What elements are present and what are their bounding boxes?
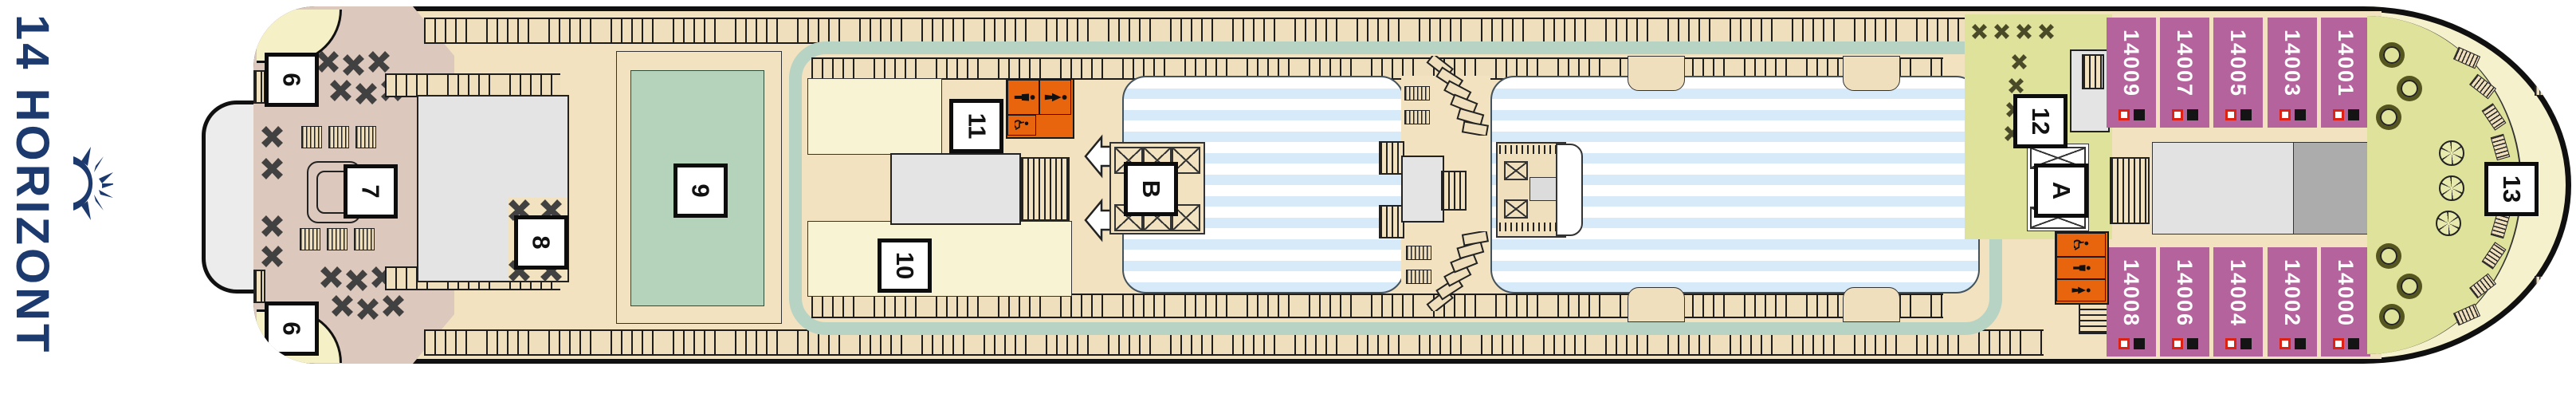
cabin-block: 14007 — [2160, 18, 2209, 128]
black-square-icon — [2295, 338, 2306, 349]
bench-icon — [327, 228, 348, 250]
deck-marker-label: 6 — [277, 73, 306, 86]
corridor-core — [2152, 142, 2295, 234]
black-square-icon — [2187, 109, 2198, 120]
cabin-indicators — [2172, 109, 2198, 120]
stairs-icon — [1441, 171, 1467, 211]
stairs-icon — [1020, 157, 1070, 221]
red-square-icon — [2225, 109, 2236, 120]
deck-marker-6-aft-bottom: 6 — [265, 301, 319, 356]
deck-marker-label: 7 — [356, 184, 385, 198]
dining-table-icon — [2383, 46, 2401, 64]
deck-marker-A: A — [2034, 164, 2088, 218]
deck-marker-6-aft-top: 6 — [265, 53, 319, 107]
bench-icon — [354, 228, 375, 250]
sofa-icon — [2535, 276, 2557, 289]
pool-terrace — [1628, 287, 1685, 322]
deck-marker-label: 8 — [527, 235, 556, 249]
deck-title: 14 HORIZONT — [11, 14, 59, 397]
cabin-block: 14002 — [2268, 247, 2317, 357]
red-square-icon — [2280, 338, 2291, 349]
wc-block — [1006, 78, 1074, 139]
bench-icon — [300, 228, 320, 250]
black-square-icon — [2187, 338, 2198, 349]
sun-lounger-row — [424, 18, 1965, 44]
deck-marker-12: 12 — [2013, 94, 2067, 148]
red-square-icon — [2119, 109, 2130, 120]
deck-marker-label: 10 — [890, 252, 919, 279]
red-square-icon — [2119, 338, 2130, 349]
cabin-indicators — [2172, 338, 2198, 349]
cabin-block: 14004 — [2213, 247, 2263, 357]
cabin-indicators — [2333, 109, 2359, 120]
cabin-indicators — [2333, 338, 2359, 349]
wc-women-icon — [2056, 279, 2106, 301]
deck-marker-13: 13 — [2484, 162, 2539, 216]
black-square-icon — [2134, 338, 2145, 349]
pool-terrace — [1843, 56, 1900, 91]
black-square-icon — [2240, 338, 2252, 349]
plant-icon — [2439, 140, 2464, 166]
sun-logo-icon — [67, 131, 113, 236]
kids-club-area — [807, 78, 942, 155]
cabin-block: 14000 — [2321, 247, 2370, 357]
deck-marker-label: 12 — [2026, 108, 2055, 135]
bench-icon — [301, 126, 322, 148]
dining-table-icon — [2383, 308, 2401, 325]
cabin-block: 14006 — [2160, 247, 2209, 357]
pool-bar-counter — [1556, 144, 1583, 236]
sun-lounger-row — [811, 294, 1943, 318]
fanned-loungers — [1425, 56, 1497, 136]
plant-icon — [2439, 175, 2464, 201]
dining-table-icon — [2380, 247, 2397, 265]
cabin-block: 14003 — [2268, 18, 2317, 128]
fanned-loungers — [1425, 231, 1497, 311]
cabin-indicators — [2119, 338, 2145, 349]
pool-terrace — [1628, 56, 1685, 91]
deck-marker-7: 7 — [344, 164, 398, 219]
ship-hull: 14009 14007 14005 14003 14001 14008 1400… — [253, 6, 2571, 364]
cabin-block: 14005 — [2213, 18, 2263, 128]
black-square-icon — [2295, 109, 2306, 120]
wc-wheelchair-icon — [2056, 233, 2106, 257]
red-square-icon — [2333, 109, 2344, 120]
deck-marker-label: A — [2047, 182, 2075, 199]
deck-marker-B: B — [1124, 162, 1178, 216]
wc-women-icon — [1039, 80, 1071, 115]
plant-icon — [2436, 211, 2461, 236]
red-square-icon — [2172, 338, 2183, 349]
lounge-area — [807, 221, 1072, 297]
pool-terrace — [1843, 287, 1900, 322]
deck-marker-label: 6 — [277, 321, 306, 335]
black-square-icon — [2348, 338, 2359, 349]
cabin-block: 14009 — [2107, 18, 2156, 128]
sofa-icon — [2552, 100, 2571, 113]
deck-marker-label: B — [1137, 180, 1165, 198]
deck-marker-11: 11 — [949, 99, 1003, 153]
dining-table-icon — [2401, 278, 2418, 295]
main-stairs-icon — [2110, 157, 2150, 224]
sofa-icon — [2552, 258, 2571, 271]
black-square-icon — [2240, 109, 2252, 120]
deck-marker-label: 13 — [2497, 175, 2526, 203]
deck-marker-label: 9 — [686, 183, 715, 197]
cabin-block: 14008 — [2107, 247, 2156, 357]
wc-block — [2055, 231, 2109, 305]
core-structure — [890, 153, 1021, 225]
bench-icon — [328, 126, 349, 148]
deck-marker-10: 10 — [878, 238, 932, 293]
wc-men-icon — [2056, 257, 2106, 279]
core-structure — [1401, 156, 1444, 223]
black-square-icon — [2134, 109, 2145, 120]
red-square-icon — [2225, 338, 2236, 349]
red-square-icon — [2280, 109, 2291, 120]
mooring-stairs-icon — [253, 70, 265, 104]
sun-lounger-row — [385, 73, 560, 97]
dining-table-icon — [2380, 108, 2397, 126]
cabin-indicators — [2225, 338, 2252, 349]
cabin-indicators — [2280, 338, 2306, 349]
deck-marker-8: 8 — [514, 215, 568, 270]
mooring-stairs-icon — [253, 270, 265, 303]
black-square-icon — [2348, 109, 2359, 120]
red-square-icon — [2333, 338, 2344, 349]
cabin-indicators — [2225, 109, 2252, 120]
wc-wheelchair-icon — [1007, 115, 1036, 136]
dining-table-icon — [2401, 80, 2418, 97]
deck-marker-9: 9 — [673, 164, 728, 218]
deck-plan-14-horizont: 14 HORIZONT — [0, 0, 2576, 398]
deck-marker-label: 11 — [962, 113, 991, 140]
wc-men-icon — [1007, 80, 1039, 115]
cabin-indicators — [2280, 109, 2306, 120]
cabin-indicators — [2119, 109, 2145, 120]
red-square-icon — [2172, 109, 2183, 120]
bench-icon — [355, 126, 376, 148]
cabin-block: 14001 — [2321, 18, 2370, 128]
sofa-icon — [2535, 83, 2557, 96]
